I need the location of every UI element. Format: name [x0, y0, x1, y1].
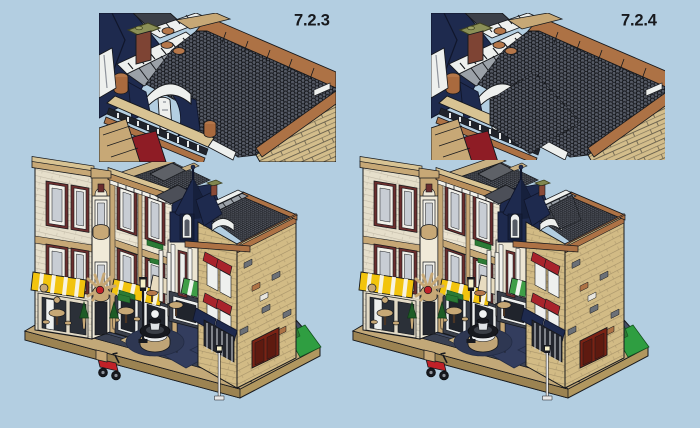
svg-text:7.2.3: 7.2.3	[294, 12, 330, 30]
svg-text:7.2.4: 7.2.4	[621, 12, 658, 30]
